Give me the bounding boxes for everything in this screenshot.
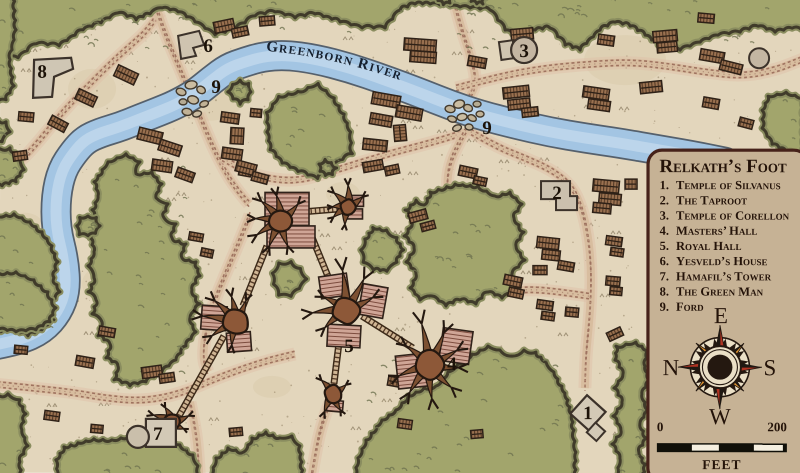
svg-text:7: 7 — [153, 424, 163, 445]
svg-text:4.: 4. — [660, 224, 669, 238]
svg-text:3: 3 — [519, 41, 529, 62]
svg-text:9: 9 — [211, 77, 221, 98]
svg-text:Hamafil’s Tower: Hamafil’s Tower — [676, 269, 772, 283]
svg-text:Temple of Silvanus: Temple of Silvanus — [676, 178, 781, 192]
svg-text:Ford: Ford — [676, 300, 704, 314]
svg-text:Relkath’s Foot: Relkath’s Foot — [659, 156, 787, 177]
svg-text:1: 1 — [583, 403, 593, 424]
svg-text:S: S — [764, 355, 777, 380]
svg-text:5.: 5. — [660, 239, 669, 253]
svg-text:8.: 8. — [660, 285, 669, 299]
svg-text:E: E — [714, 303, 728, 328]
svg-text:0: 0 — [657, 419, 664, 434]
svg-text:9: 9 — [482, 118, 492, 139]
svg-text:6: 6 — [203, 36, 213, 57]
svg-text:7.: 7. — [660, 269, 669, 283]
svg-text:3.: 3. — [660, 209, 669, 223]
svg-text:2: 2 — [552, 183, 562, 204]
svg-text:Masters’ Hall: Masters’ Hall — [676, 224, 757, 238]
svg-text:5: 5 — [344, 336, 354, 357]
svg-text:The Taproot: The Taproot — [676, 193, 747, 207]
svg-text:8: 8 — [37, 62, 47, 83]
svg-text:The Green Man: The Green Man — [676, 285, 764, 299]
svg-text:1.: 1. — [660, 178, 669, 192]
svg-text:2.: 2. — [660, 193, 669, 207]
svg-text:4: 4 — [447, 354, 457, 375]
svg-text:W: W — [709, 404, 731, 429]
svg-text:200: 200 — [767, 419, 787, 434]
svg-text:Royal Hall: Royal Hall — [676, 239, 742, 253]
svg-text:9.: 9. — [660, 300, 669, 314]
svg-text:FEET: FEET — [702, 457, 741, 472]
svg-text:Yesveld’s House: Yesveld’s House — [676, 254, 768, 268]
svg-text:Temple of Corellon: Temple of Corellon — [676, 209, 790, 223]
svg-text:6.: 6. — [660, 254, 669, 268]
svg-text:N: N — [663, 355, 680, 380]
